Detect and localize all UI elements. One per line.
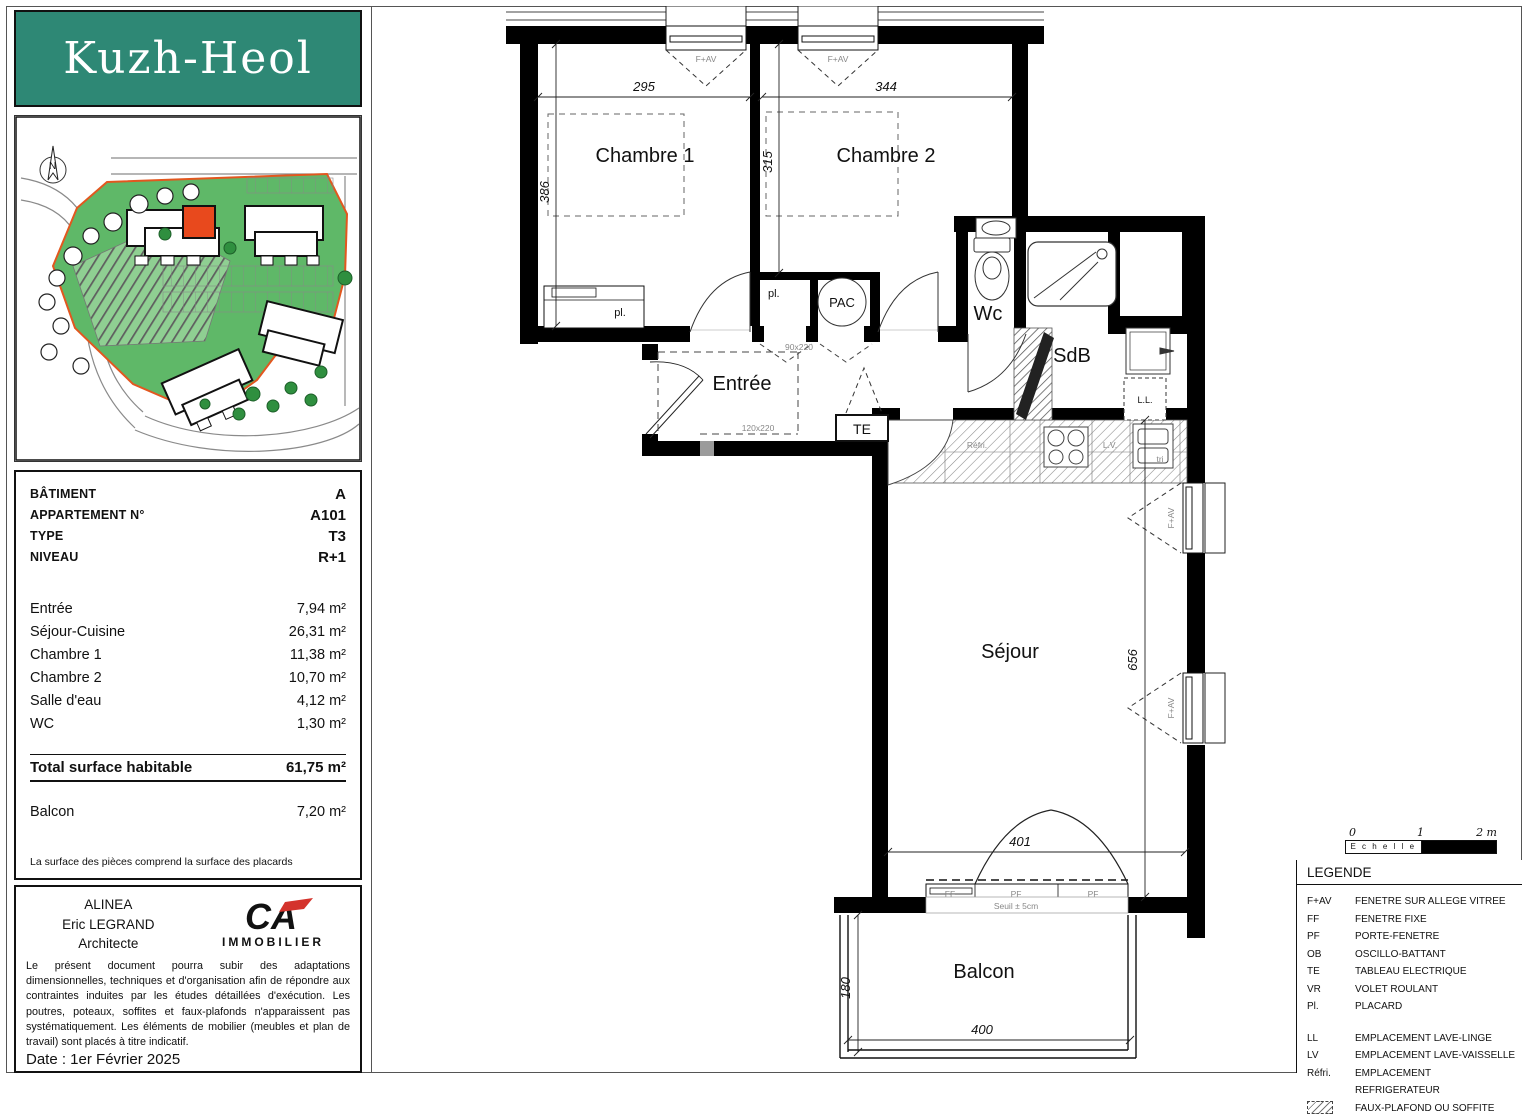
legend-row: F+AVFENETRE SUR ALLEGE VITREE [1307,893,1518,911]
info-row: TYPET3 [30,526,346,547]
svg-text:PAC: PAC [829,295,855,310]
legend-row: TETABLEAU ELECTRIQUE [1307,963,1518,981]
apartment-info-panel: BÂTIMENTA APPARTEMENT N°A101 TYPET3 NIVE… [14,470,362,880]
room-balcon: Balcon [953,961,1014,983]
svg-text:Seuil ± 5cm: Seuil ± 5cm [994,901,1038,911]
dim-386: 386 [537,180,552,202]
svg-text:TE: TE [853,421,871,437]
legend-row: PFPORTE-FENETRE [1307,928,1518,946]
door-chambre1 [690,272,750,332]
washer-slot: L.L. [1124,378,1166,420]
building-b [245,206,323,265]
info-row: APPARTEMENT N°A101 [30,505,346,526]
placard-chambre2-label: pl. [768,288,780,300]
window-fav-sejour-2: F+AV [1128,673,1225,743]
scale-bar: 0 1 2 m E c h e l l e [1345,826,1497,856]
scale-label: E c h e l l e [1346,841,1422,853]
dim-401: 401 [1009,834,1031,849]
shower-icon [1028,242,1116,306]
firm-name: ALINEA [22,895,195,915]
area-row: Chambre 210,70 m² [30,667,346,690]
legend-row: LLEMPLACEMENT LAVE-LINGE [1307,1030,1518,1048]
architect-name: Eric LEGRAND [22,915,195,935]
info-row: NIVEAUR+1 [30,547,346,568]
sink-icon [1133,424,1173,468]
room-wc: Wc [974,303,1003,325]
legend-row: FFFENETRE FIXE [1307,911,1518,929]
site-plan-drawing: N [15,116,361,461]
vanity-icon [1126,328,1174,374]
site-plan-box: N [14,115,362,462]
legend-row: LVEMPLACEMENT LAVE-VAISSELLE [1307,1047,1518,1065]
window-fav-chambre1: F+AV [666,6,746,86]
disclaimer-text: Le présent document pourra subir des ada… [16,954,360,1051]
entry-door [646,362,703,438]
area-row: WC1,30 m² [30,713,346,736]
scale-black-segment [1422,841,1497,853]
kitchen-door-dashed [846,368,882,413]
architect-role: Architecte [22,934,195,954]
svg-text:F+AV: F+AV [828,54,849,64]
room-chambre1: Chambre 1 [596,145,695,167]
toilet-icon [974,238,1010,300]
total-surface-row: Total surface habitable61,75 m² [30,754,346,782]
project-title: Kuzh-Heol [63,33,313,84]
dim-400: 400 [971,1022,993,1037]
adjoining-structure-lines [506,12,1044,20]
window-fav-sejour-1: F+AV [1128,483,1225,553]
dim-315: 315 [760,150,775,172]
parking-row [247,178,333,193]
room-entree: Entrée [713,373,772,395]
svg-text:F+AV: F+AV [1166,507,1176,528]
fridge-label: Réfri. [967,440,987,450]
svg-text:F+AV: F+AV [696,54,717,64]
dim-180: 180 [838,976,853,998]
dishwasher-label: L.V. [1103,440,1117,450]
architect-identity: ALINEA Eric LEGRAND Architecte [22,895,195,954]
dim-344: 344 [875,79,897,94]
dim-295: 295 [632,79,655,94]
placard-chambre1: pl. [544,286,644,328]
area-row: Salle d'eau4,12 m² [30,690,346,713]
sdb-sliding-door [1014,328,1054,420]
balcony-row: Balcon7,20 m² [30,804,346,820]
dim-656: 656 [1125,648,1140,670]
legend-row: FAUX-PLAFOND OU SOFFITE [1307,1100,1518,1117]
svg-text:pl.: pl. [614,307,626,319]
surface-footnote: La surface des pièces comprend la surfac… [30,856,293,868]
area-row: Séjour-Cuisine26,31 m² [30,621,346,644]
svg-text:IMMOBILIER: IMMOBILIER [222,935,324,949]
legend-panel: LEGENDE F+AVFENETRE SUR ALLEGE VITREE FF… [1296,860,1522,1073]
te-box: TE [836,415,888,441]
door-chambre2 [878,272,938,332]
svg-text:F+AV: F+AV [1166,697,1176,718]
date-line: Date : 1er Février 2025 [26,1051,180,1068]
architect-panel: ALINEA Eric LEGRAND Architecte CA IMMOBI… [14,885,362,1073]
area-row: Chambre 111,38 m² [30,644,346,667]
legend-title: LEGENDE [1297,860,1522,885]
legend-row: VRVOLET ROULANT [1307,981,1518,999]
pac-unit: PAC [818,278,866,326]
legend-row: OBOSCILLO-BATTANT [1307,946,1518,964]
room-sdb: SdB [1053,345,1091,367]
project-logo: Kuzh-Heol [14,10,362,107]
hatch-swatch-icon [1307,1101,1333,1114]
ca-immobilier-logo-icon: CA IMMOBILIER [209,898,339,950]
svg-text:N: N [49,161,56,172]
legend-row: Réfri.EMPLACEMENT REFRIGERATEUR [1307,1065,1518,1100]
door-size-label: 120x220 [742,423,775,433]
parking-row [163,292,333,312]
building-a [127,206,219,265]
wc-basin-icon [976,218,1016,238]
area-row: Entrée7,94 m² [30,598,346,621]
highlighted-apartment [183,206,215,238]
hob-icon [1044,427,1088,467]
wall-gray-segment [700,441,714,456]
info-row: BÂTIMENTA [30,484,346,505]
room-sejour: Séjour [981,641,1039,663]
svg-text:L.L.: L.L. [1137,395,1152,405]
parking-row [163,266,333,286]
door-size-label: 90x220 [785,342,813,352]
window-fav-chambre2: F+AV [798,6,878,86]
balcony-doors: FF PF PF Seuil ± 5cm [926,810,1128,913]
room-chambre2: Chambre 2 [837,145,936,167]
closet-fold-doors [760,344,872,362]
legend-row: Pl.PLACARD [1307,998,1518,1016]
tri-label: tri [1156,454,1163,464]
